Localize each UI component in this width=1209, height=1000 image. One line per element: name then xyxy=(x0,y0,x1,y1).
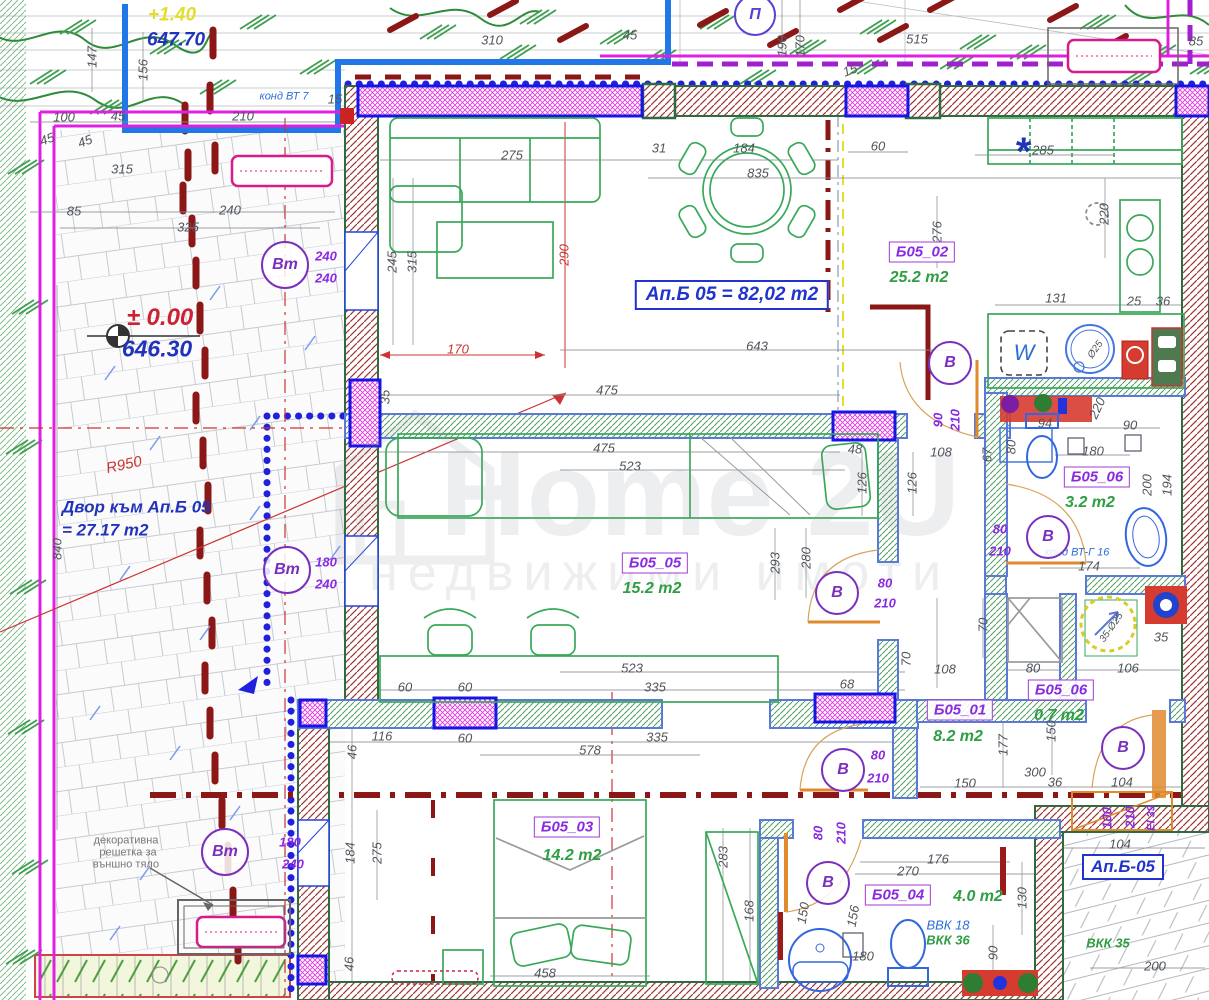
dim-label: 45 xyxy=(38,130,56,147)
dim-label: 180 xyxy=(315,556,337,569)
dim-label: 210 xyxy=(867,772,889,785)
dim-label: 840 xyxy=(51,538,64,560)
dim-label: 835 xyxy=(747,167,769,180)
door-code-circle-В: В xyxy=(815,571,859,615)
dim-label: 80 xyxy=(993,523,1007,536)
dim-label: 36 xyxy=(1048,776,1062,789)
dim-label: 275 xyxy=(501,149,523,162)
dim-label: 240 xyxy=(315,578,337,591)
dim-label: 104 xyxy=(1111,776,1133,789)
dim-label: 275 xyxy=(371,842,384,864)
dim-label: 174 xyxy=(1078,560,1100,573)
dim-label: 245 xyxy=(386,251,399,273)
dim-label: 280 xyxy=(800,547,813,569)
dim-label: декоративна xyxy=(94,836,159,847)
room-label-Б05_01: Б05_01 xyxy=(927,700,993,721)
door-code-circle-В: В xyxy=(1101,726,1145,770)
dim-label: 210 xyxy=(989,545,1011,558)
dim-label: 60 xyxy=(458,732,472,745)
dim-label: 60 xyxy=(458,681,472,694)
room-label-Б05_04: Б05_04 xyxy=(865,885,931,906)
dim-label: 180 xyxy=(852,950,874,963)
door-code-circle-В: В xyxy=(928,341,972,385)
dim-label: 176 xyxy=(927,853,949,866)
dim-label: 45 xyxy=(111,110,125,123)
dim-label: 150 xyxy=(795,901,812,925)
dim-label: 523 xyxy=(621,662,643,675)
dim-label: 100 xyxy=(1101,807,1114,829)
dim-label: 170 xyxy=(794,35,807,57)
vkk35: ВКК 35 xyxy=(1086,937,1129,950)
dim-label: 578 xyxy=(579,744,601,757)
terrace-label: Ап.Б-05 xyxy=(1082,854,1164,880)
dim-label: 270 xyxy=(897,865,919,878)
dim-label: 190 xyxy=(776,35,789,57)
dim-label: 276 xyxy=(931,221,944,243)
dim-label: 156 xyxy=(845,904,862,928)
dim-label: 70 xyxy=(900,652,913,666)
annotation-layer: +1.40647.70конд ВТ 714715610045210153104… xyxy=(0,0,1209,1000)
dim-label: Ø25 xyxy=(1086,339,1105,360)
door-code-circle-Вт: Вт xyxy=(201,828,249,876)
dim-label: 108 xyxy=(934,663,956,676)
dim-label: 116 xyxy=(372,730,393,743)
vvk18: ВВК 18 xyxy=(926,919,969,932)
dim-label: 80 xyxy=(1005,440,1018,454)
yard-label: Двор към Ап.Б 05 xyxy=(62,499,211,516)
dim-label: 177 xyxy=(997,734,1010,756)
dim-label: 315 xyxy=(111,163,133,176)
elevation-647: 647.70 xyxy=(147,31,205,50)
dim-label: 335 xyxy=(646,731,668,744)
dim-label: 180 xyxy=(1082,445,1104,458)
door-code-circle-В: В xyxy=(821,748,865,792)
dim-label: 475 xyxy=(593,442,615,455)
dim-label: 180 xyxy=(279,836,301,849)
dim-label: 293 xyxy=(769,552,782,574)
dim-label: 35 xyxy=(1154,631,1168,644)
room-area-Б05_04: 4.0 m2 xyxy=(953,888,1003,906)
dim-label: 515 xyxy=(906,33,928,46)
dim-label: 194 xyxy=(1161,474,1174,496)
door-code-circle-В: В xyxy=(806,861,850,905)
dim-label: 283 xyxy=(717,846,730,868)
dim-label: 80 xyxy=(1026,662,1040,675)
dim-label: 25 xyxy=(1127,295,1141,308)
dim-label: 131 xyxy=(1045,292,1067,305)
room-area-Б05_06: 3.2 m2 xyxy=(1065,494,1115,512)
dim-label: EI 39 xyxy=(1147,805,1158,831)
dim-label: 80 xyxy=(871,749,885,762)
apartment-title: Ап.Б 05 = 82,02 m2 xyxy=(635,280,829,310)
cond-vt7: конд ВТ 7 xyxy=(260,92,309,103)
room-label-Б05_05: Б05_05 xyxy=(622,553,688,574)
washing-machine-label: W xyxy=(1014,342,1035,364)
yard-area: = 27.17 m2 xyxy=(62,522,149,539)
dim-label: 126 xyxy=(856,472,869,494)
dim-label: 85 xyxy=(67,205,81,218)
dim-label: 290 xyxy=(558,244,571,266)
dim-label: 126 xyxy=(906,472,919,494)
dim-label: 130 xyxy=(1016,887,1029,909)
dim-label: 200 xyxy=(1144,960,1166,973)
dim-label: 94 xyxy=(1038,417,1052,430)
dim-label: 325 xyxy=(177,221,199,234)
dim-label: 35 xyxy=(379,390,392,404)
floor-plan-canvas: Home 2U недвижими имоти +1.40647.70конд … xyxy=(0,0,1209,1000)
dim-label: 310 xyxy=(481,34,503,47)
dim-label: 240 xyxy=(282,858,304,871)
dim-label: 46 xyxy=(346,745,359,759)
dim-label: 80 xyxy=(812,826,825,840)
dim-label: 475 xyxy=(596,384,618,397)
dim-label: 48 xyxy=(848,443,862,456)
dim-label: 523 xyxy=(619,460,641,473)
dim-label: 45 xyxy=(623,29,637,42)
dim-label: 210 xyxy=(874,597,896,610)
dim-label: 80 xyxy=(878,577,892,590)
dim-label: 60 xyxy=(871,140,885,153)
dim-label: 200 xyxy=(1141,474,1154,496)
dim-label: 210 xyxy=(835,822,848,844)
room-label-Б05_02: Б05_02 xyxy=(889,242,955,263)
door-code-circle-П: П xyxy=(734,0,776,36)
dim-label: 31 xyxy=(652,142,666,155)
dim-label: 147 xyxy=(86,46,99,68)
dim-label: 156 xyxy=(137,59,150,81)
dim-label: 168 xyxy=(743,900,756,922)
dim-label: 210 xyxy=(1124,806,1137,828)
dim-label: 106 xyxy=(1117,662,1139,675)
dim-label: 90 xyxy=(932,413,945,427)
dim-label: 240 xyxy=(315,272,337,285)
dim-label: 67 xyxy=(981,448,994,462)
door-code-circle-Вт: Вт xyxy=(261,241,309,289)
dim-label: външно тяло xyxy=(93,860,159,871)
dim-label: 220 xyxy=(1087,395,1108,420)
dim-label: 45 xyxy=(76,132,94,149)
dim-label: 85 xyxy=(1189,35,1203,48)
room-area-Б05_01: 8.2 m2 xyxy=(933,728,983,746)
dim-label: 90 xyxy=(1123,419,1137,432)
dim-label: 335 xyxy=(644,681,666,694)
room-area-Б05_02: 25.2 m2 xyxy=(890,269,949,287)
dim-label: 15 xyxy=(328,93,342,106)
dim-label: 15 xyxy=(841,61,859,78)
dim-label: 300 xyxy=(1024,766,1046,779)
dim-label: 210 xyxy=(232,110,254,123)
dim-label: 220 xyxy=(1098,203,1111,225)
dim-label: 184 xyxy=(344,842,357,864)
dim-label: 315 xyxy=(406,251,419,273)
room-area-Б05_06: 0.7 m2 xyxy=(1034,707,1084,725)
level-zero: ± 0.00 xyxy=(127,306,194,330)
dim-label: 104 xyxy=(1109,838,1131,851)
dim-label: 240 xyxy=(315,250,337,263)
dim-label: 60 xyxy=(398,681,412,694)
dim-label: 108 xyxy=(930,446,952,459)
dim-label: 90 xyxy=(987,946,1000,960)
radius-label: R950 xyxy=(105,454,143,476)
room-label-Б05_06: Б05_06 xyxy=(1028,680,1094,701)
dim-label: 170 xyxy=(447,343,469,356)
room-label-Б05_03: Б05_03 xyxy=(534,817,600,838)
dim-label: 46 xyxy=(343,957,356,971)
dim-label: 70 xyxy=(977,618,990,632)
dim-label: 35-Ø25 xyxy=(1098,611,1125,644)
dim-label: 68 xyxy=(840,678,854,691)
door-code-circle-Вт: Вт xyxy=(263,546,311,594)
dim-label: 458 xyxy=(534,967,556,980)
dim-label: 184 xyxy=(733,142,755,155)
room-area-Б05_03: 14.2 m2 xyxy=(543,847,602,865)
dim-label: 100 xyxy=(53,111,75,124)
level-top: +1.40 xyxy=(148,6,196,25)
dim-label: 36 xyxy=(1156,295,1170,308)
dim-label: решетка за xyxy=(99,848,156,859)
room-label-Б05_06: Б05_06 xyxy=(1064,467,1130,488)
dim-label: 643 xyxy=(746,340,768,353)
door-code-circle-В: В xyxy=(1026,515,1070,559)
symbol-asterisk: * xyxy=(1014,132,1030,172)
vkk36: ВКК 36 xyxy=(926,934,969,947)
dim-label: 285 xyxy=(1032,144,1054,157)
dim-label: 150 xyxy=(954,777,976,790)
room-area-Б05_05: 15.2 m2 xyxy=(623,580,682,598)
dim-label: 240 xyxy=(219,204,241,217)
dim-label: 210 xyxy=(949,409,962,431)
elevation-646: 646.30 xyxy=(122,338,192,361)
